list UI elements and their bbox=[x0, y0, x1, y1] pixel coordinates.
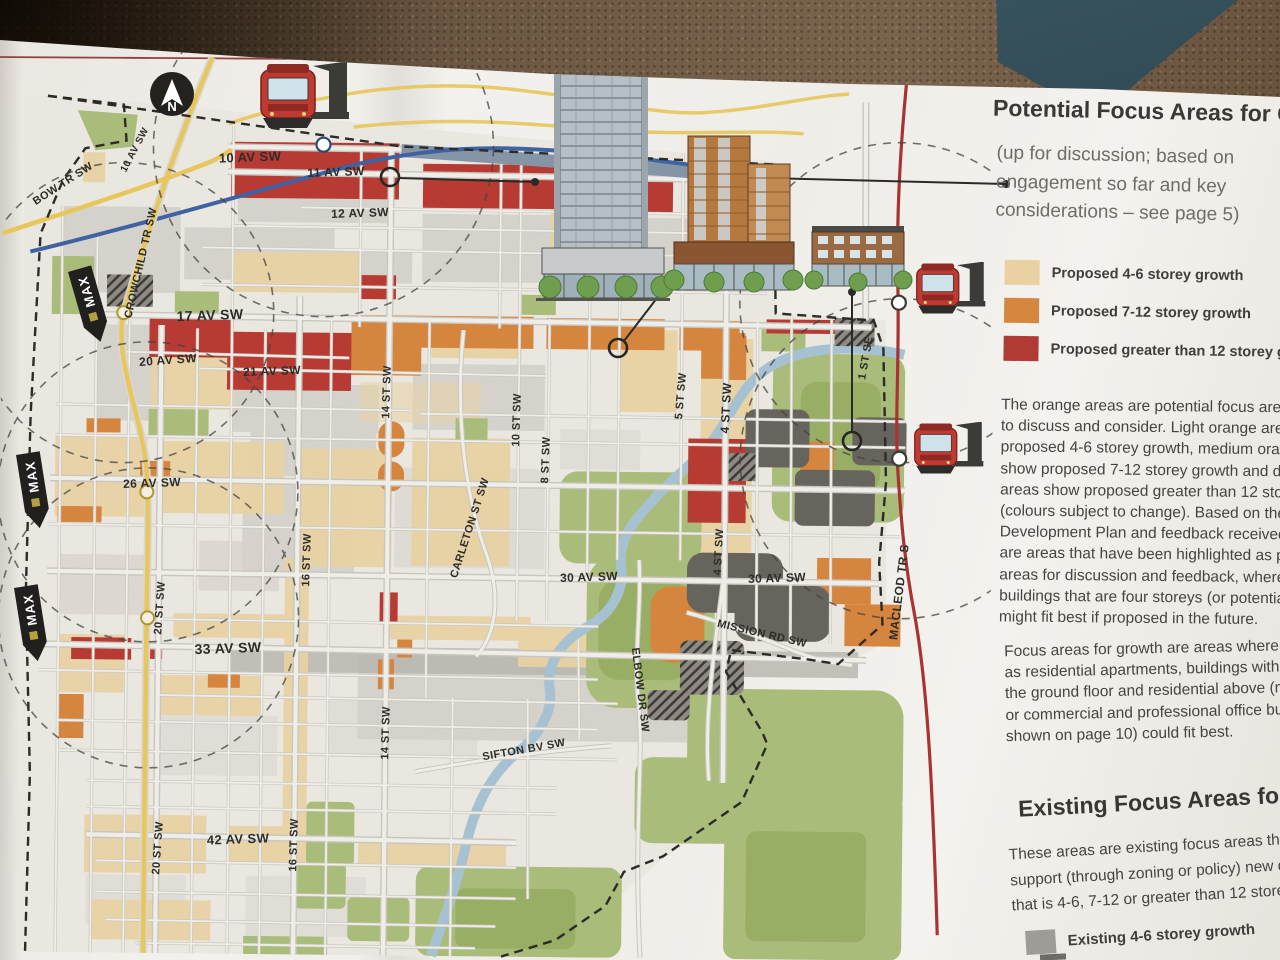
paragraph-existing: These areas are existing focus areas tha… bbox=[1008, 826, 1280, 919]
paragraph-focus-areas: Focus areas for growth are areas where b… bbox=[1004, 635, 1280, 747]
paragraph-orange-areas: The orange areas are potential focus are… bbox=[999, 394, 1280, 631]
paragraph-line: might fit best if proposed in the future… bbox=[999, 606, 1280, 631]
north-arrow-icon: N bbox=[150, 72, 194, 116]
legend-swatch bbox=[1004, 298, 1039, 323]
legend-swatch bbox=[1025, 929, 1056, 955]
legend-label: Proposed 7-12 storey growth bbox=[1051, 303, 1251, 322]
north-letter: N bbox=[167, 99, 176, 114]
subtitle-line: (up for discussion; based on bbox=[996, 139, 1241, 173]
paragraph-line: proposed 4-6 storey growth, medium orang… bbox=[1001, 437, 1280, 462]
photo-scene: MAX bbox=[0, 0, 1280, 960]
legend-item: Proposed greater than 12 storey growth bbox=[1003, 336, 1280, 365]
page-subtitle: (up for discussion; based onengagement s… bbox=[995, 139, 1241, 230]
legend-proposed: Proposed 4-6 storey growthProposed 7-12 … bbox=[1003, 260, 1280, 378]
legend-item: Proposed 7-12 storey growth bbox=[1004, 298, 1280, 327]
legend-next-item-sliver bbox=[1040, 953, 1066, 960]
street-trees bbox=[805, 271, 912, 291]
legend-swatch bbox=[1003, 336, 1038, 361]
subtitle-line: considerations – see page 5) bbox=[995, 196, 1240, 230]
legend-item: Proposed 4-6 storey growth bbox=[1004, 260, 1280, 289]
legend-label: Proposed 4-6 storey growth bbox=[1052, 265, 1244, 284]
legend-swatch bbox=[1004, 260, 1039, 285]
legend-label: Proposed greater than 12 storey growth bbox=[1050, 341, 1280, 361]
paragraph-line: are areas that have been highlighted as … bbox=[999, 543, 1280, 568]
booklet-page: MAX bbox=[0, 0, 1280, 960]
lowrise-illustration bbox=[805, 226, 912, 291]
